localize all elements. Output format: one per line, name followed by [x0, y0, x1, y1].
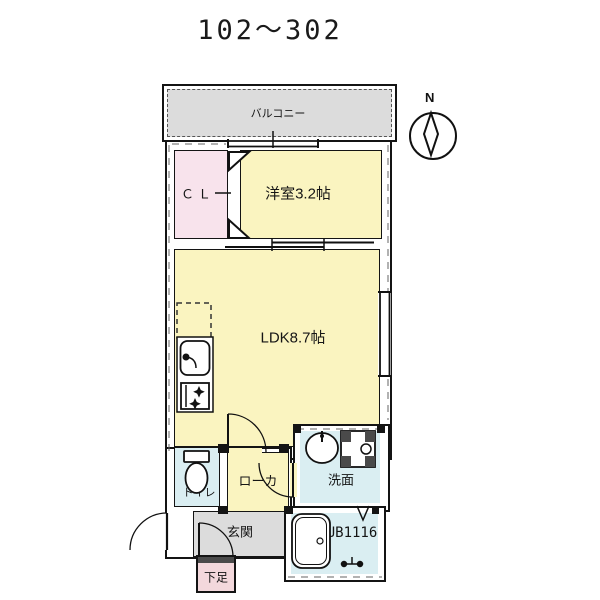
balcony-label: バルコニー [251, 105, 306, 121]
room-washroom [300, 431, 380, 503]
hallway-label: ローカ [238, 471, 277, 490]
washroom-label: 洗面 [328, 470, 354, 489]
entrance-label: 玄関 [227, 522, 253, 541]
shoe-storage-label: 下足 [204, 569, 228, 586]
toilet-label: トイレ [183, 484, 216, 500]
compass-north-label: N [425, 90, 434, 105]
room-ldk [174, 249, 380, 447]
ldk-label: LDK8.7帖 [260, 327, 325, 348]
room-bath [291, 513, 378, 574]
bath-label: UB1116 [327, 525, 378, 541]
shoe-storage-counter [198, 557, 234, 563]
compass-icon [409, 112, 457, 160]
floorplan-page: { "title": "102〜302", "compass": { "labe… [0, 0, 600, 600]
closet-label: ＣＬ [181, 184, 215, 203]
page-title: 102〜302 [0, 8, 540, 47]
bedroom-label: 洋室3.2帖 [265, 183, 331, 204]
